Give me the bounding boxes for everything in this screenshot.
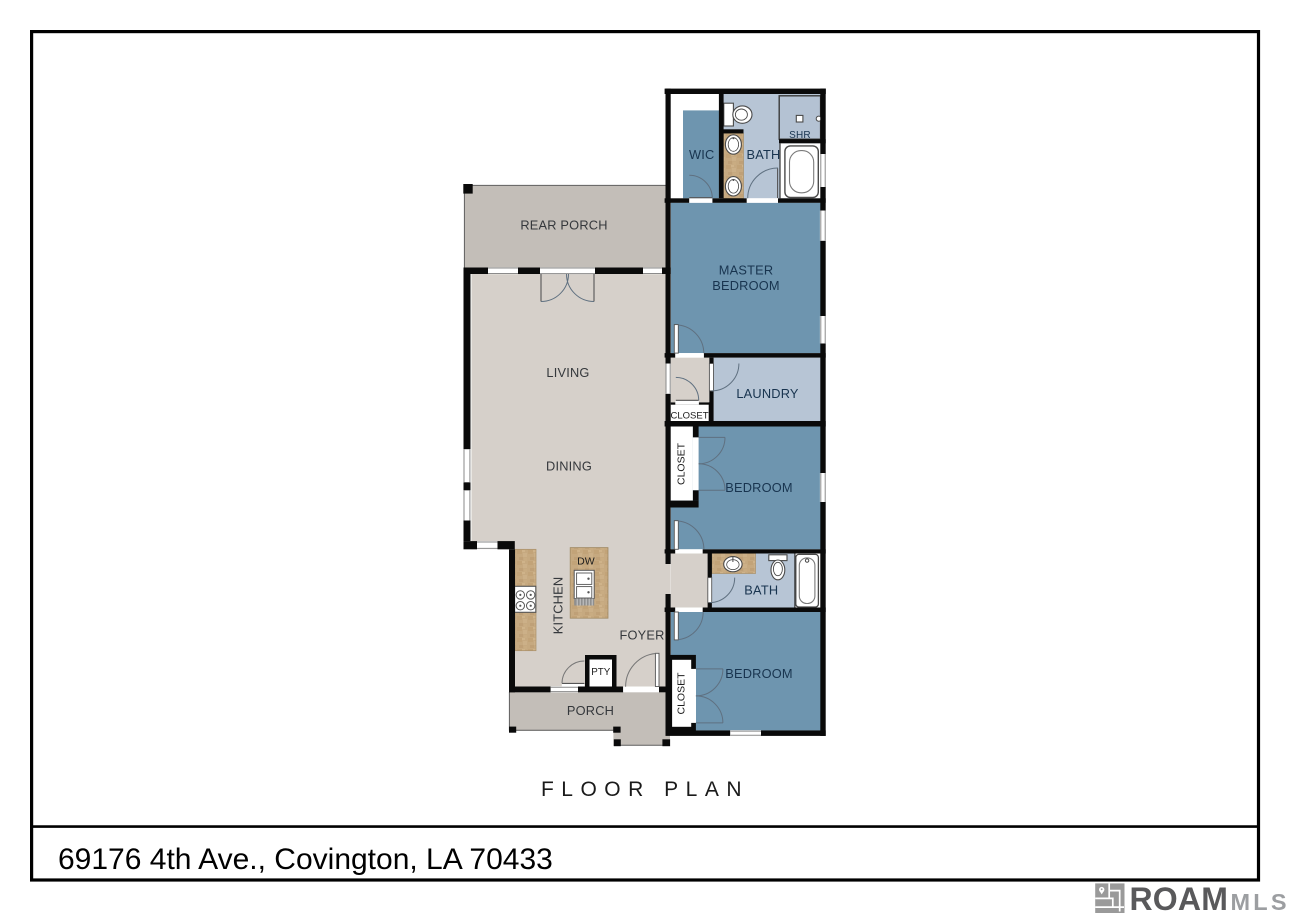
- svg-text:MLS: MLS: [1231, 889, 1290, 913]
- svg-text:PORCH: PORCH: [567, 703, 614, 718]
- svg-text:BEDROOM: BEDROOM: [725, 480, 793, 495]
- svg-text:CLOSET: CLOSET: [676, 442, 688, 485]
- svg-text:DW: DW: [577, 556, 595, 568]
- svg-text:BEDROOM: BEDROOM: [712, 278, 780, 293]
- svg-text:BATH: BATH: [747, 147, 781, 162]
- svg-text:CLOSET: CLOSET: [676, 672, 688, 715]
- svg-text:BATH: BATH: [744, 582, 778, 597]
- svg-text:SHR: SHR: [789, 130, 811, 141]
- svg-text:69176 4th Ave., Covington, LA: 69176 4th Ave., Covington, LA 70433: [58, 843, 553, 876]
- svg-text:ROAM: ROAM: [1130, 881, 1229, 913]
- svg-text:LIVING: LIVING: [546, 365, 589, 380]
- svg-text:PTY: PTY: [591, 667, 611, 678]
- svg-text:BEDROOM: BEDROOM: [725, 666, 793, 681]
- svg-text:FOYER: FOYER: [619, 628, 664, 643]
- svg-text:WIC: WIC: [689, 147, 714, 162]
- svg-text:KITCHEN: KITCHEN: [551, 577, 566, 635]
- svg-text:LAUNDRY: LAUNDRY: [736, 386, 799, 401]
- svg-text:MASTER: MASTER: [719, 263, 774, 278]
- svg-text:FLOOR PLAN: FLOOR PLAN: [541, 778, 749, 801]
- svg-text:REAR PORCH: REAR PORCH: [520, 218, 607, 233]
- svg-text:DINING: DINING: [546, 459, 592, 474]
- svg-text:CLOSET: CLOSET: [670, 410, 708, 421]
